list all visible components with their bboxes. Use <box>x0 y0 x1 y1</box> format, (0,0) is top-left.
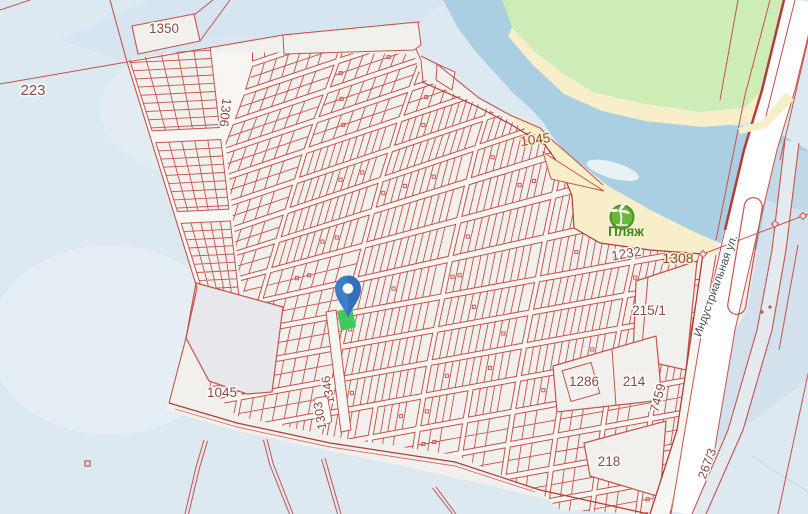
svg-text:1045: 1045 <box>207 385 237 400</box>
svg-text:1350: 1350 <box>149 21 179 36</box>
svg-text:218: 218 <box>598 454 621 469</box>
svg-text:223: 223 <box>20 82 45 99</box>
svg-text:1286: 1286 <box>569 374 599 389</box>
svg-text:215/1: 215/1 <box>632 303 666 318</box>
svg-text:1308: 1308 <box>662 250 693 266</box>
svg-text:214: 214 <box>623 374 646 389</box>
